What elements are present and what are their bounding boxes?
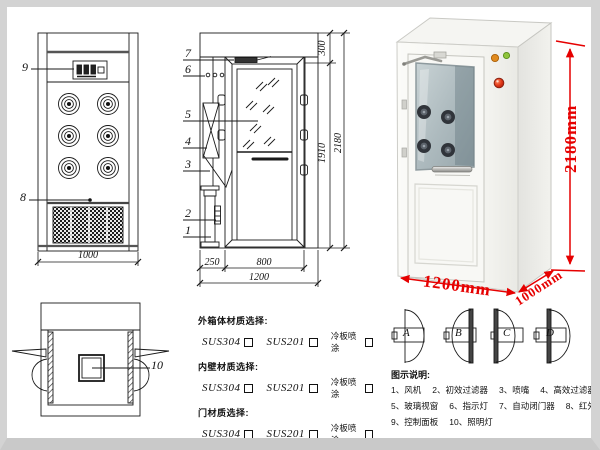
side-dim-2180: 2180 xyxy=(334,126,344,160)
material-option-label: 冷板喷涂 xyxy=(331,330,361,354)
side-dim-300: 300 xyxy=(318,35,328,61)
material-option-label: 冷板喷涂 xyxy=(331,376,361,400)
material-option-label: SUS201 xyxy=(266,336,304,348)
legend-item: 9、控制面板 xyxy=(391,416,438,428)
material-group-options: SUS304 SUS201 冷板喷涂 xyxy=(202,330,386,354)
legend-title: 图示说明: xyxy=(391,368,596,381)
legend-item: 10、照明灯 xyxy=(449,416,492,428)
part-label-5: 5 xyxy=(185,108,191,120)
door-option-a-label: A xyxy=(403,327,410,339)
material-checkbox[interactable] xyxy=(244,384,253,393)
part-label-6: 6 xyxy=(185,63,191,75)
material-group-options: SUS304 SUS201 冷板喷涂 xyxy=(202,422,386,446)
side-dim-250: 250 xyxy=(198,258,226,268)
indicator-lights-icon xyxy=(206,73,224,77)
material-option-label: SUS201 xyxy=(266,428,304,440)
hinge-icons xyxy=(218,95,308,175)
nozzle-icons xyxy=(59,94,119,179)
top-view-drawing xyxy=(12,303,169,416)
legend-item: 1、风机 xyxy=(391,384,421,396)
spec-sheet: 9 8 1000 7 6 5 4 3 2 1 10 300 1910 2180 … xyxy=(0,0,600,450)
photo-render xyxy=(397,18,551,292)
legend-item: 4、高效过滤器 xyxy=(540,384,596,396)
part-label-3: 3 xyxy=(185,158,191,170)
door-option-c-label: C xyxy=(503,327,510,339)
material-checkbox[interactable] xyxy=(244,430,253,439)
material-checkbox[interactable] xyxy=(365,384,373,393)
material-option-label: SUS304 xyxy=(202,382,240,394)
material-checkbox[interactable] xyxy=(309,338,318,347)
material-selection: 外箱体材质选择: SUS304 SUS201 冷板喷涂 内壁材质选择: SUS3… xyxy=(196,314,386,450)
material-group-options: SUS304 SUS201 冷板喷涂 xyxy=(202,376,386,400)
side-dim-1910: 1910 xyxy=(318,138,328,168)
legend-row: 1、风机 2、初效过滤器 3、喷嘴 4、高效过滤器 xyxy=(391,384,596,396)
door-option-glyphs xyxy=(392,309,570,363)
legend-item: 5、玻璃视窗 xyxy=(391,400,438,412)
material-option-label: SUS304 xyxy=(202,336,240,348)
material-checkbox[interactable] xyxy=(309,384,318,393)
photo-door-glass xyxy=(416,63,474,170)
legend-row: 9、控制面板 10、照明灯 xyxy=(391,416,596,428)
legend-item: 3、喷嘴 xyxy=(499,384,529,396)
material-group-title: 内壁材质选择: xyxy=(198,360,386,373)
door-option-d-label: D xyxy=(546,327,554,339)
photo-hinge-icon xyxy=(402,148,407,157)
part-label-8: 8 xyxy=(20,191,26,203)
door-closer-icon xyxy=(235,57,271,63)
filter-column-icon xyxy=(201,186,221,247)
door-glass xyxy=(237,69,292,240)
door-option-b-label: B xyxy=(455,327,462,339)
material-checkbox[interactable] xyxy=(365,430,373,439)
part-label-2: 2 xyxy=(185,207,191,219)
glass-hatch-marks xyxy=(243,78,279,149)
material-checkbox[interactable] xyxy=(244,338,253,347)
material-group-title: 门材质选择: xyxy=(198,406,386,419)
material-group-title: 外箱体材质选择: xyxy=(198,314,386,327)
wall-hatch-left xyxy=(48,332,53,403)
photo-height-dim: 2180mm xyxy=(561,127,581,173)
legend-item: 6、指示灯 xyxy=(449,400,488,412)
material-option-label: SUS304 xyxy=(202,428,240,440)
part-label-10: 10 xyxy=(151,359,163,371)
part-label-7: 7 xyxy=(185,47,191,59)
legend-item: 2、初效过滤器 xyxy=(432,384,488,396)
control-panel-icon xyxy=(73,61,107,79)
air-grille-icon xyxy=(53,207,123,243)
legend-item: 7、自动闭门器 xyxy=(499,400,555,412)
part-label-4: 4 xyxy=(185,135,191,147)
open-door-left-icon xyxy=(12,349,47,391)
material-checkbox[interactable] xyxy=(309,430,318,439)
material-option-label: SUS201 xyxy=(266,382,304,394)
side-dim-1200: 1200 xyxy=(238,273,280,283)
part-label-9: 9 xyxy=(22,61,28,73)
legend-row: 5、玻璃视窗 6、指示灯 7、自动闭门器 8、红外线感应器 xyxy=(391,400,596,412)
material-option-label: 冷板喷涂 xyxy=(331,422,361,446)
legend: 图示说明: 1、风机 2、初效过滤器 3、喷嘴 4、高效过滤器 5、玻璃视窗 6… xyxy=(391,368,596,432)
legend-item: 8、红外线感应器 xyxy=(566,400,600,412)
fan-box-icon xyxy=(203,103,219,158)
part-label-1: 1 xyxy=(185,224,191,236)
front-width-dim: 1000 xyxy=(68,251,108,261)
material-checkbox[interactable] xyxy=(365,338,373,347)
front-view-drawing xyxy=(29,33,141,266)
side-dim-800: 800 xyxy=(246,258,282,268)
wall-hatch-right xyxy=(128,332,133,403)
photo-hinge-icon xyxy=(402,100,407,109)
